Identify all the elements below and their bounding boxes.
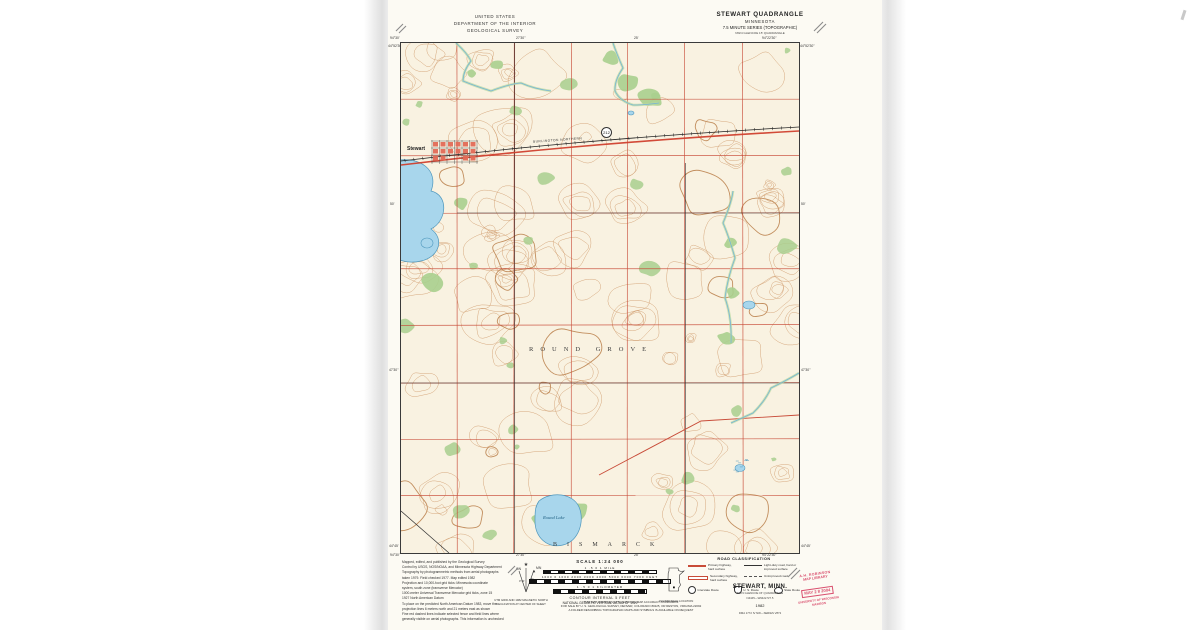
contour-line: [704, 216, 749, 259]
township-label-round-grove: ROUND GROVE: [529, 346, 653, 353]
edge-label: 94°30': [390, 36, 400, 40]
road-class-title: ROAD CLASSIFICATION: [688, 557, 800, 561]
contour-line: [495, 345, 512, 363]
edge-label: 27'30": [516, 36, 525, 40]
vegetation-patch: [777, 238, 797, 254]
contour-line: [569, 196, 590, 211]
contour-line: [608, 284, 651, 314]
contour-line: [489, 448, 497, 455]
town-block: [463, 149, 468, 154]
pencil-mark: [394, 22, 408, 34]
contour-line: [531, 386, 562, 411]
edge-label: 50': [390, 202, 394, 206]
town-block: [456, 142, 461, 147]
contour-line: [622, 311, 646, 331]
vegetation-patch: [537, 172, 555, 185]
contour-line: [688, 337, 693, 341]
interstate-shield-icon: [688, 586, 696, 594]
vegetation-patch: [454, 198, 467, 210]
scale-bar: [529, 579, 671, 583]
contour-line: [554, 379, 601, 426]
contour-line: [664, 353, 676, 364]
contour-line: [508, 49, 567, 99]
vegetation-patch: [514, 444, 519, 449]
contour-line: [645, 526, 658, 537]
contour-line: [450, 91, 457, 97]
contour-line: [401, 70, 422, 94]
vegetation-patch: [402, 119, 409, 126]
section-line: [743, 43, 744, 553]
contour-line: [658, 478, 667, 486]
contour-line: [492, 341, 518, 366]
svg-text:0°41': 0°41': [519, 579, 525, 583]
contour-line: [628, 312, 643, 325]
minnesota-outline-icon: [665, 567, 687, 593]
contour-line: [405, 373, 438, 397]
scanned-topo-map-page: UNITED STATES DEPARTMENT OF THE INTERIOR…: [0, 0, 1200, 630]
edge-label: 47'30": [801, 368, 810, 372]
diagonal-road: [401, 511, 449, 553]
label-line: hard surface: [708, 567, 732, 571]
credit-line: Fine red dashed lines indicate selected …: [402, 612, 524, 617]
edge-label: 94°22'30": [762, 36, 777, 40]
vegetation-patch: [444, 442, 460, 456]
vegetation-patch: [560, 78, 578, 90]
pond-shape: [628, 111, 634, 115]
primary-highway-label: Primary highway, hard surface: [708, 563, 732, 571]
contour-line: [746, 541, 763, 553]
diagonal-road: [599, 415, 799, 475]
sheet-series-number: DMA 1772 IV NW—SERIES V872: [718, 611, 802, 615]
contour-line: [401, 77, 413, 89]
town-block: [448, 149, 453, 154]
contour-line: [477, 198, 516, 231]
edge-label: 94°30': [390, 553, 400, 557]
agency-header: UNITED STATES DEPARTMENT OF THE INTERIOR…: [410, 13, 580, 34]
town-block: [441, 149, 446, 154]
vegetation-patch: [453, 505, 470, 518]
town-block: [456, 149, 461, 154]
contour-line: [476, 430, 497, 447]
road-class-item: Secondary highway, hard surface: [688, 574, 744, 582]
agency-line-3: GEOLOGICAL SURVEY: [410, 27, 580, 34]
contour-line: [475, 55, 489, 66]
lake-shape: [401, 160, 444, 262]
contour-line: [726, 494, 768, 533]
contour-line: [781, 253, 799, 267]
vegetation-patch: [467, 69, 476, 77]
credit-line: projection lines 6 meters north and 21 m…: [402, 607, 524, 612]
scale-bar-miles: 1 .5 0 1 MILE: [528, 566, 672, 574]
contour-line: [573, 279, 600, 300]
town-block: [463, 142, 468, 147]
scan-shadow-right: [880, 0, 906, 630]
contour-line: [532, 247, 561, 271]
quad-title: STEWART QUADRANGLE: [672, 11, 848, 18]
stream: [456, 43, 551, 91]
stream-fringe: [723, 191, 735, 343]
map-sheet: UNITED STATES DEPARTMENT OF THE INTERIOR…: [388, 0, 882, 630]
pond-shape: [421, 238, 433, 248]
vegetation-patch: [416, 101, 423, 108]
town-label: Stewart: [407, 146, 425, 152]
vegetation-patch: [731, 505, 740, 512]
edge-label: 44°45': [389, 544, 399, 548]
contour-line: [559, 381, 599, 414]
vegetation-patch: [771, 458, 776, 462]
contour-line: [680, 170, 730, 215]
vegetation-patch: [781, 167, 792, 176]
quad-location-caption: QUADRANGLE LOCATION: [654, 599, 698, 603]
vegetation-patch: [731, 405, 742, 417]
unimproved-road-sample: [744, 576, 762, 577]
contour-line: [778, 469, 787, 477]
road-class-item: Primary highway, hard surface: [688, 563, 744, 571]
vegetation-patch: [499, 337, 507, 344]
edge-label: 50': [801, 202, 805, 206]
contour-line: [612, 300, 659, 340]
contour-line: [430, 56, 466, 88]
label-line: Secondary highway,: [710, 574, 738, 578]
contour-line: [405, 43, 445, 72]
contour-line: [502, 123, 517, 136]
contour-line: [772, 285, 784, 295]
contour-line: [767, 183, 771, 187]
contour-line: [724, 144, 746, 161]
contour-line: [483, 464, 531, 509]
contour-line: [788, 312, 799, 333]
town-block: [463, 156, 468, 161]
road-class-col-left: Primary highway, hard surface Secondary …: [688, 563, 744, 584]
contour-line: [559, 237, 589, 260]
secondary-highway-label: Secondary highway, hard surface: [710, 574, 738, 582]
scale-km-labels: 1 .5 0 1 KILOMETER: [528, 585, 672, 589]
contour-line: [701, 119, 735, 147]
edge-label: 44°52'30": [800, 44, 815, 48]
pencil-mark: [506, 564, 520, 576]
scale-block: SCALE 1:24 000 1 .5 0 1 MILE 1000 0 1000…: [528, 559, 672, 605]
contour-line: [718, 340, 763, 377]
contour-line: [770, 282, 789, 299]
vegetation-patch: [509, 106, 522, 116]
contour-line: [430, 485, 446, 502]
interstate-route: Interstate Route: [688, 586, 719, 594]
contour-line: [725, 151, 743, 165]
interstate-route-label: Interstate Route: [698, 588, 719, 592]
quad-location-marker: [673, 587, 675, 589]
contour-line: [537, 391, 560, 412]
vegetation-patch: [523, 237, 533, 245]
scan-corner-artifact: [1181, 10, 1187, 20]
map-neatline-area: Stewart BURLINGTON NORTHERN 212 ROUND GR…: [400, 42, 800, 554]
vegetation-patch: [666, 489, 674, 495]
vegetation-patch: [681, 472, 694, 485]
vegetation-patch: [421, 273, 443, 292]
contour-line: [741, 198, 779, 235]
contour-line: [419, 472, 459, 513]
contour-line: [499, 411, 553, 453]
contour-line: [497, 119, 525, 142]
contour-line: [409, 262, 429, 274]
town-block: [441, 156, 446, 161]
contour-line: [561, 123, 607, 163]
town-block: [471, 149, 476, 154]
contour-line: [412, 375, 431, 391]
scale-bar: [543, 570, 657, 574]
scale-bar-km: 1 .5 0 1 KILOMETER: [528, 585, 672, 593]
contour-line: [770, 305, 799, 345]
contour-line: [738, 52, 784, 92]
folder-note: A FOLDER DESCRIBING TOPOGRAPHIC MAPS AND…: [556, 608, 706, 612]
contour-line: [785, 306, 799, 339]
contour-line: [427, 43, 457, 60]
route-shield: 212: [601, 127, 612, 138]
town-block: [433, 142, 438, 147]
town-block: [471, 142, 476, 147]
pond-shape: [735, 465, 745, 472]
scale-bar-feet: 1000 0 1000 2000 3000 4000 5000 6000 700…: [528, 575, 672, 583]
pencil-mark: [786, 566, 802, 580]
vegetation-patch: [630, 179, 643, 190]
contour-line: [439, 167, 464, 187]
contour-line: [614, 154, 635, 176]
contour-line: [553, 231, 591, 268]
contour-line: [615, 199, 635, 216]
pond-shape: [743, 301, 755, 309]
pencil-mark: [812, 20, 828, 34]
section-line: [401, 439, 799, 440]
vegetation-patch: [717, 332, 735, 345]
town-block: [471, 156, 476, 161]
section-line: [401, 325, 799, 326]
contour-line: [507, 246, 526, 263]
agency-line-1: UNITED STATES: [410, 13, 580, 20]
town-block: [433, 149, 438, 154]
town-block: [448, 142, 453, 147]
contour-line: [760, 195, 784, 215]
vegetation-patch: [508, 424, 518, 434]
vegetation-patch: [401, 319, 415, 334]
scale-feet-labels: 1000 0 1000 2000 3000 4000 5000 6000 700…: [528, 575, 672, 579]
light-duty-road-sample: [744, 565, 762, 566]
contour-line: [401, 74, 415, 93]
scale-title: SCALE 1:24 000: [528, 559, 672, 564]
secondary-highway-sample: [688, 576, 708, 580]
vegetation-patch: [785, 48, 791, 54]
vegetation-patch: [482, 530, 497, 540]
lake-shape: [535, 495, 581, 546]
scale-bar: [553, 589, 647, 593]
edge-label: 25': [634, 36, 638, 40]
vegetation-patch: [618, 74, 638, 91]
terrain-graphics: [401, 43, 799, 553]
contour-line: [689, 248, 710, 264]
label-line: hard surface: [710, 578, 738, 582]
contour-line: [651, 473, 672, 489]
contour-line: [558, 183, 600, 220]
contour-line: [420, 481, 454, 509]
primary-highway-sample: [688, 565, 706, 567]
contour-line: [436, 534, 474, 553]
contour-line: [678, 497, 697, 518]
credit-line: generally visible on aerial photographs.…: [402, 617, 524, 622]
scan-shadow-left: [364, 0, 390, 630]
contour-line: [766, 182, 774, 189]
contour-line: [495, 269, 530, 301]
township-label-bismarck: BISMARCK: [553, 542, 664, 548]
edge-label: 47'30": [389, 368, 398, 372]
contour-line: [414, 44, 437, 67]
lake-label: Round Lake: [543, 515, 565, 520]
contour-line: [539, 382, 550, 394]
contour-line: [401, 481, 427, 531]
edge-label: 44°45': [801, 544, 811, 548]
town-block: [441, 142, 446, 147]
town-block: [433, 156, 438, 161]
agency-line-2: DEPARTMENT OF THE INTERIOR: [410, 20, 580, 27]
